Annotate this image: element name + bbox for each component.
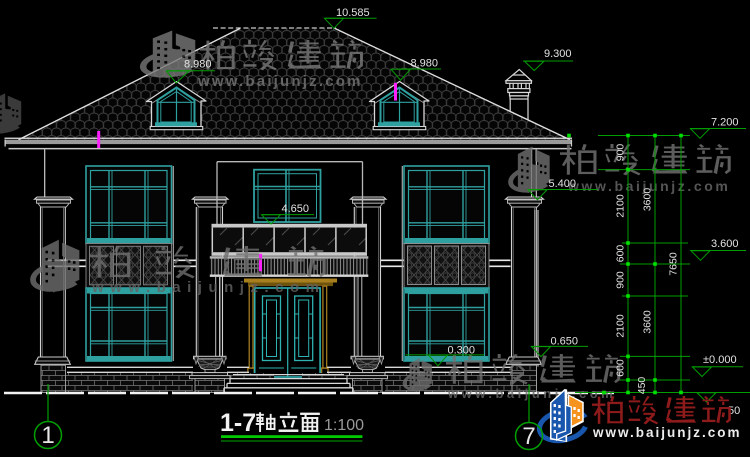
svg-text:7.200: 7.200 xyxy=(711,117,739,129)
svg-text:4.650: 4.650 xyxy=(282,203,310,215)
svg-text:1: 1 xyxy=(41,422,54,449)
svg-text:3.600: 3.600 xyxy=(711,238,739,250)
svg-text:0.650: 0.650 xyxy=(551,336,579,348)
svg-text:5.400: 5.400 xyxy=(549,178,577,190)
svg-text:900: 900 xyxy=(615,271,627,289)
svg-text:www.baijunjz.com: www.baijunjz.com xyxy=(592,425,742,440)
svg-text:www.baijunjz.com: www.baijunjz.com xyxy=(447,386,616,401)
svg-text:9.300: 9.300 xyxy=(544,48,572,60)
svg-text:www.baijunjz.com: www.baijunjz.com xyxy=(197,73,363,90)
svg-text:7650: 7650 xyxy=(668,252,680,276)
svg-text:2100: 2100 xyxy=(615,314,627,338)
svg-text:±0.000: ±0.000 xyxy=(703,354,737,366)
svg-text:600: 600 xyxy=(615,245,627,263)
svg-text:1:100: 1:100 xyxy=(324,417,364,434)
svg-text:1-7: 1-7 xyxy=(220,409,256,437)
svg-text:8.980: 8.980 xyxy=(411,58,439,70)
svg-text:7: 7 xyxy=(522,423,535,450)
svg-text:www.baijunjz.com: www.baijunjz.com xyxy=(91,279,325,296)
svg-text:600: 600 xyxy=(615,359,627,377)
svg-text:2100: 2100 xyxy=(615,194,627,218)
svg-text:10.585: 10.585 xyxy=(336,7,370,19)
svg-text:900: 900 xyxy=(615,144,627,162)
svg-text:8.980: 8.980 xyxy=(184,59,212,71)
svg-text:3600: 3600 xyxy=(642,188,654,212)
svg-text:3600: 3600 xyxy=(642,310,654,334)
svg-text:450: 450 xyxy=(636,377,648,395)
